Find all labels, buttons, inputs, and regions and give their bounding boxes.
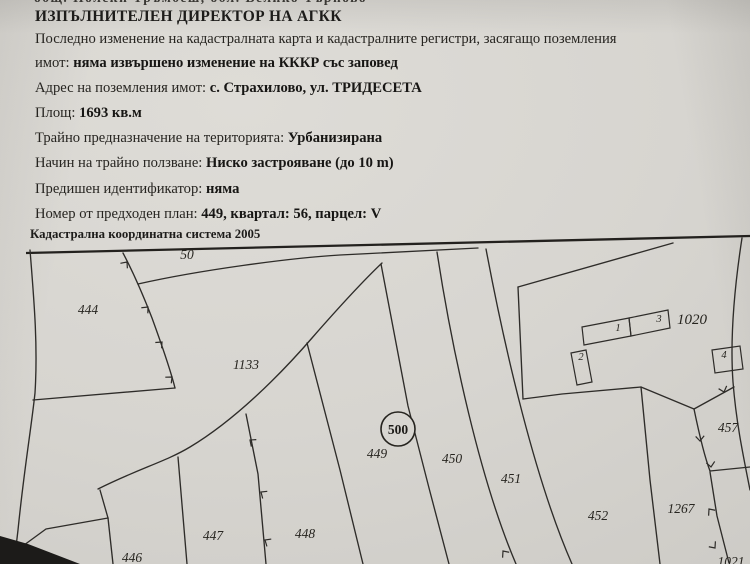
road-label-50: 50	[180, 247, 194, 262]
building-label-1: 1	[615, 323, 620, 334]
parcel-label-1021: 1021	[718, 554, 745, 564]
photo-corner-shadow	[0, 536, 80, 564]
parcel-label-452: 452	[588, 508, 609, 523]
buildings: 1 2 3 4	[571, 310, 743, 385]
parcel-label-447: 447	[203, 528, 225, 543]
building-label-2: 2	[578, 352, 584, 363]
parcel-label-446: 446	[122, 550, 143, 564]
parcel-label-449: 449	[367, 446, 388, 461]
parcel-label-1020: 1020	[677, 312, 708, 328]
parcel-labels: 50 444 1133 449 450 451 452 1267 457 102…	[78, 247, 745, 564]
building-label-3: 3	[655, 314, 661, 325]
parcel-label-451: 451	[501, 471, 521, 486]
map-border	[26, 236, 750, 253]
boundary-tick-marks	[120, 260, 729, 559]
circle-label-500: 500	[388, 422, 409, 437]
parcel-label-450: 450	[442, 451, 463, 466]
building-label-4: 4	[721, 350, 727, 361]
parcel-label-448: 448	[295, 526, 316, 541]
parcel-label-1267: 1267	[668, 501, 696, 516]
cadastral-map: 1 2 3 4 500 50 444 1133 449 450 451 452 …	[0, 0, 750, 564]
parcel-label-444: 444	[78, 302, 99, 317]
building-4-outline	[712, 346, 743, 373]
building-1-outline	[582, 318, 631, 345]
scanned-cadastral-document: { "doc": { "top_fragment": "общ. Полски …	[0, 0, 750, 564]
map-boundaries	[14, 238, 750, 564]
building-3-outline	[629, 310, 670, 336]
parcel-label-457: 457	[718, 420, 740, 435]
parcel-label-1133: 1133	[233, 357, 259, 372]
parcel-point-circle: 500	[381, 412, 415, 446]
